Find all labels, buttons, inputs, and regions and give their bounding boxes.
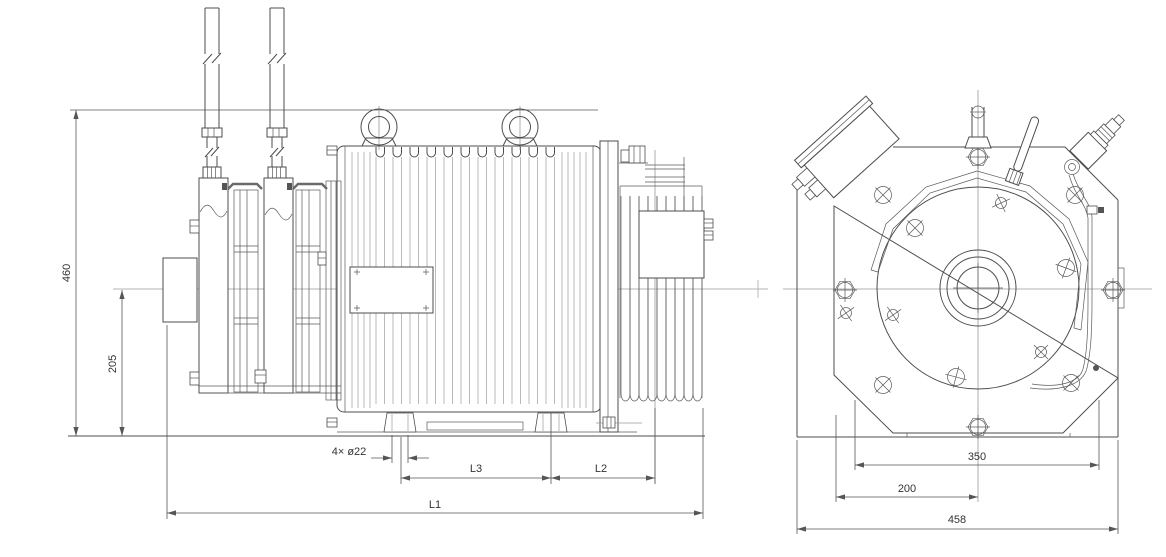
junction-box (781, 96, 902, 212)
motor-body (327, 146, 601, 427)
brake-rods (202, 8, 287, 178)
shaft-stub (163, 258, 197, 322)
cable-exit-ring (1065, 160, 1080, 175)
bedplate (797, 165, 1124, 437)
side-view (68, 8, 768, 484)
eye-bolts (361, 106, 538, 150)
dimension-l3: L3 (401, 413, 551, 484)
dim-label-axis-height: 205 (107, 355, 119, 373)
technical-drawing-canvas: 460 205 4× ø22 L3 (0, 0, 1166, 557)
dim-label-l1: L1 (429, 499, 441, 511)
encoder-connector (1065, 108, 1131, 174)
nameplate (350, 267, 433, 313)
cable-clamp (1087, 206, 1097, 214)
hand-lever (1005, 115, 1042, 186)
end-plate (600, 141, 618, 432)
dim-label-front-axis-offset: 200 (898, 483, 916, 495)
bedplate-bolt (596, 417, 642, 428)
dimension-foot-holes: 4× ø22 (332, 435, 429, 463)
dim-label-foot-holes: 4× ø22 (332, 446, 367, 458)
dim-label-front-foot-span: 350 (968, 451, 986, 463)
dim-label-l3: L3 (470, 463, 482, 475)
dim-label-overall-height: 460 (61, 264, 73, 282)
dimension-overall-height: 460 (61, 110, 79, 436)
mounting-feet (384, 413, 567, 432)
terminal-box (639, 211, 713, 278)
dimension-front-overall-width: 458 (797, 440, 1118, 534)
dim-label-l2: L2 (595, 463, 607, 475)
front-view (781, 90, 1152, 502)
dim-label-front-overall-width: 458 (948, 514, 966, 526)
dimension-front-axis-offset: 200 (836, 415, 978, 502)
dimension-axis-height: 205 (107, 290, 125, 436)
traction-sheave (620, 150, 702, 484)
traction-machine-drawing: 460 205 4× ø22 L3 (0, 0, 1166, 557)
encoder-cable (1030, 174, 1104, 389)
dimension-front-foot-span: 350 (855, 400, 1099, 470)
